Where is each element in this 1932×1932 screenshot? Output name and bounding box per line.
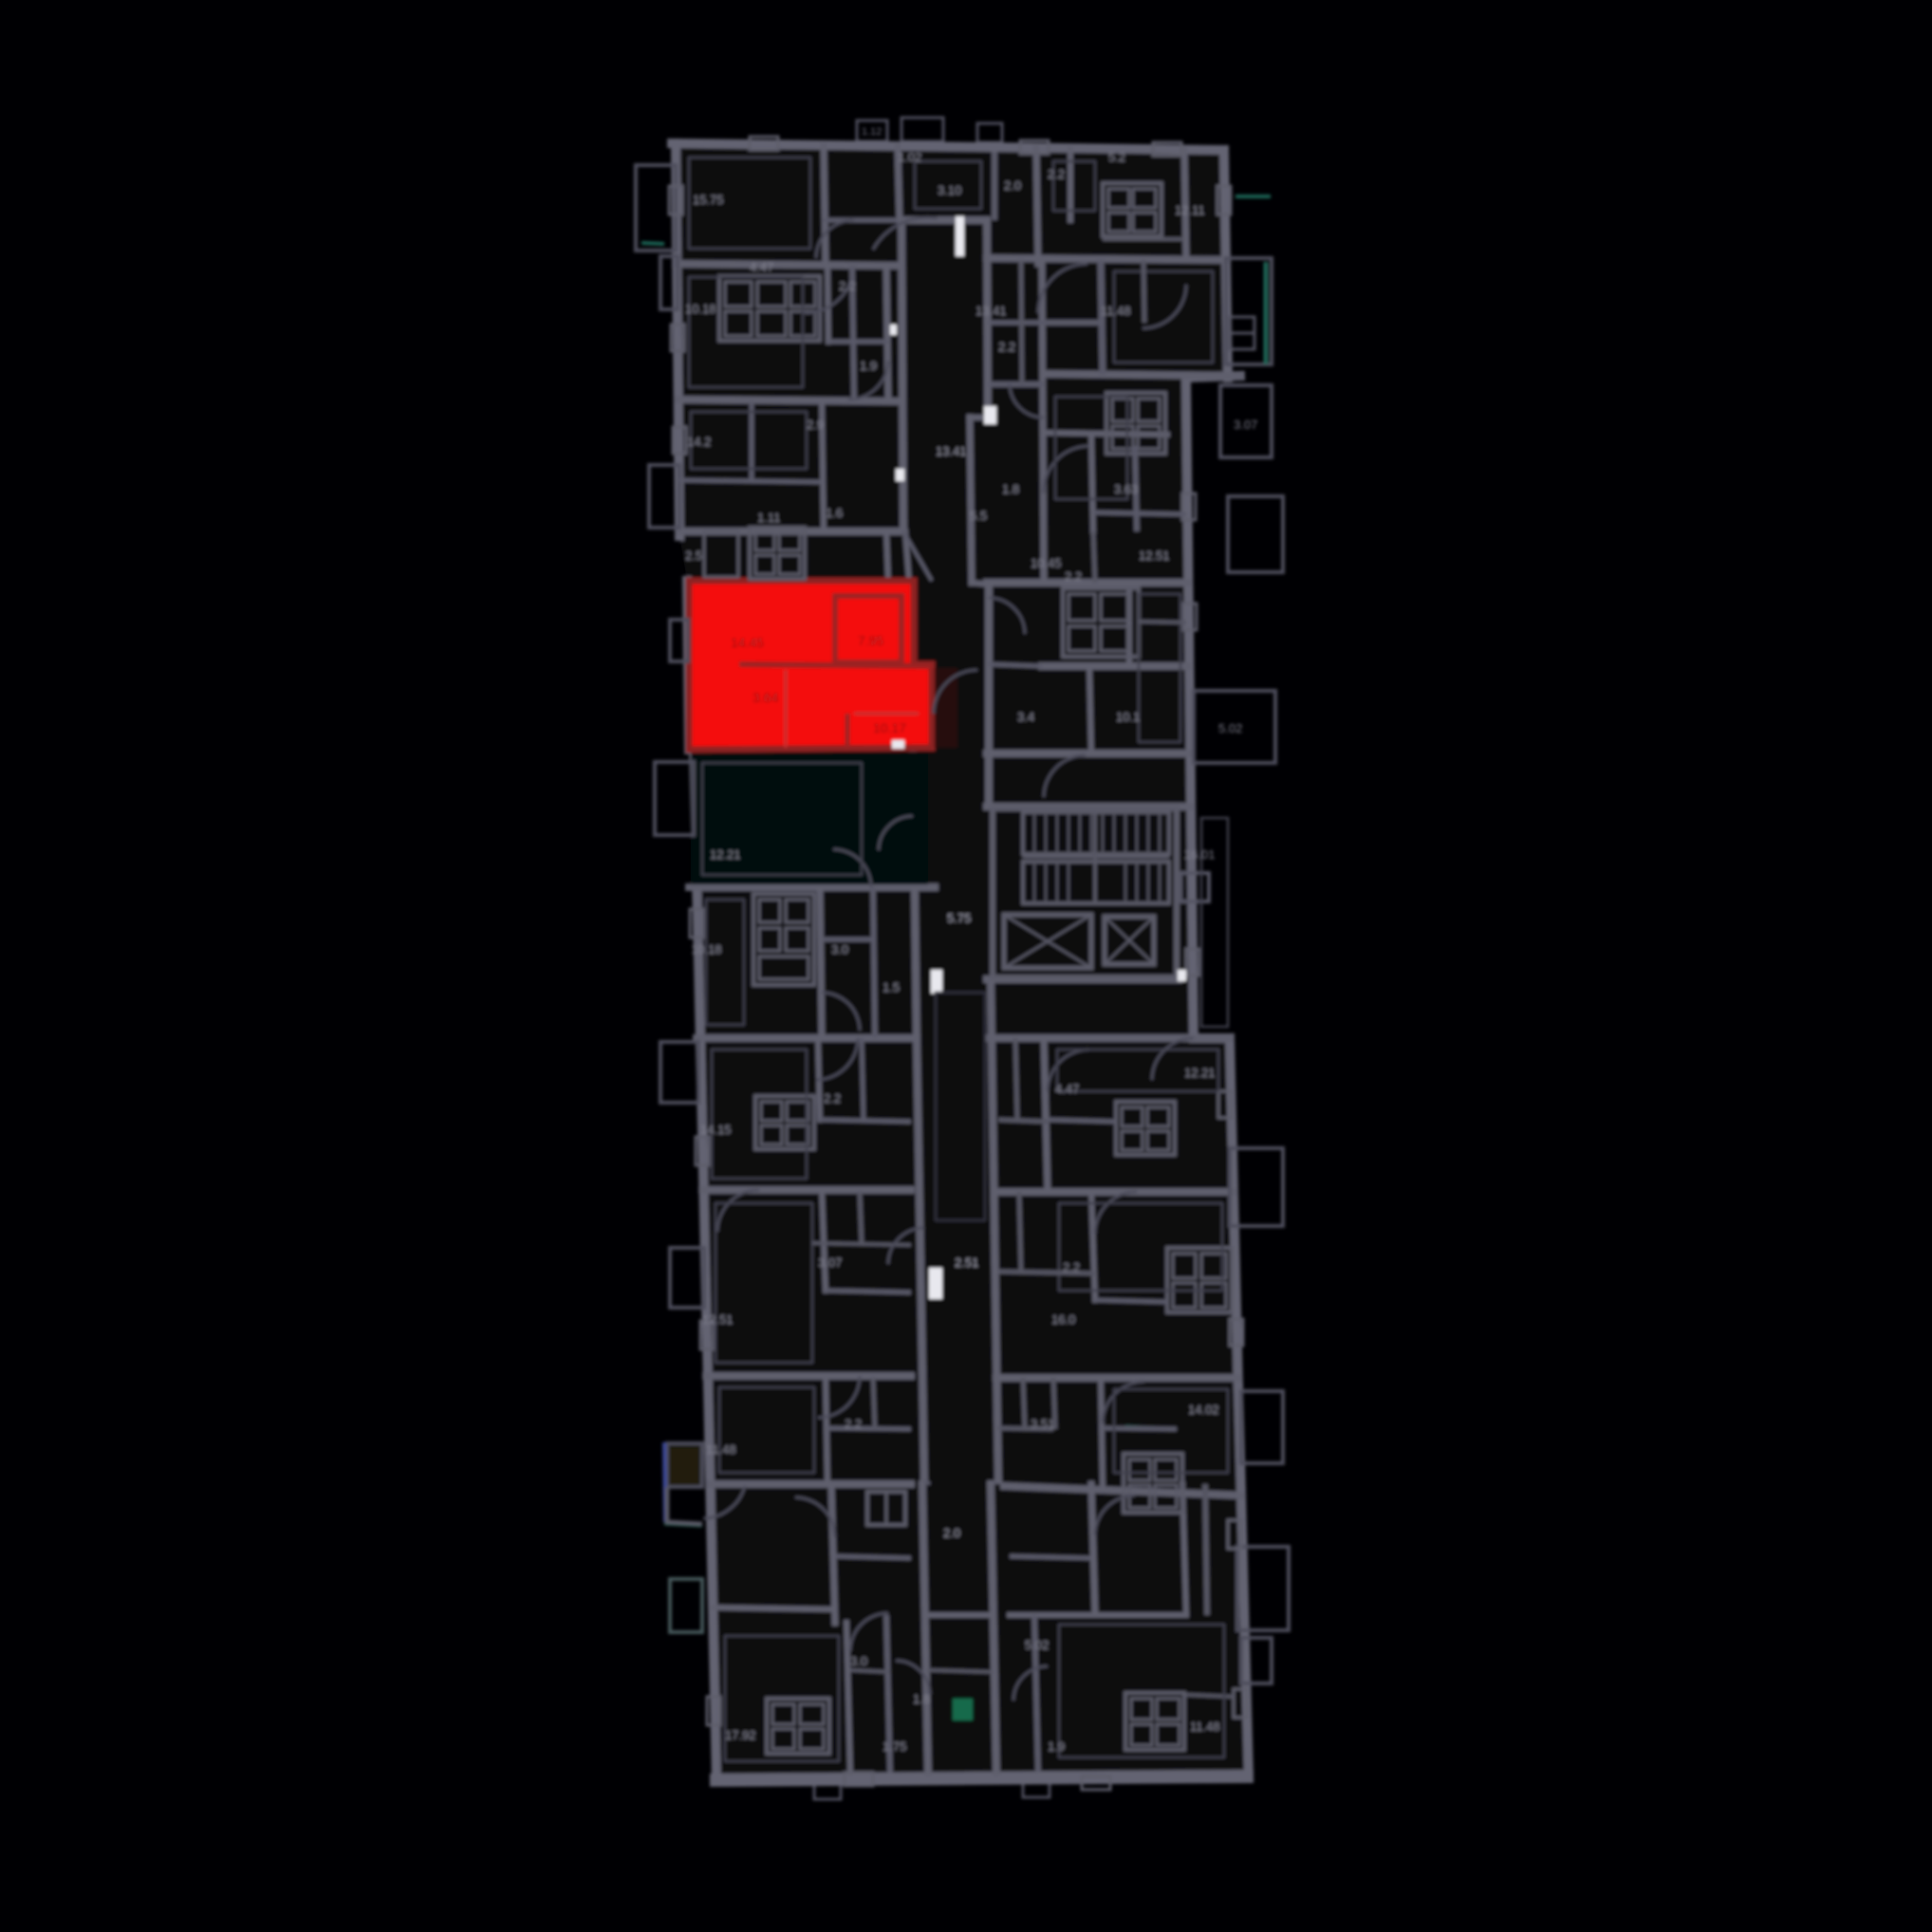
svg-text:2.2: 2.2 xyxy=(824,1091,841,1105)
svg-text:3.0: 3.0 xyxy=(831,942,848,957)
svg-text:2.0: 2.0 xyxy=(1004,178,1021,193)
svg-text:12.51: 12.51 xyxy=(1139,548,1170,563)
svg-text:14.2: 14.2 xyxy=(687,435,711,449)
svg-text:2.9: 2.9 xyxy=(807,418,824,432)
svg-text:3.51: 3.51 xyxy=(1031,1417,1054,1431)
svg-text:7.95: 7.95 xyxy=(858,633,883,648)
svg-text:5.75: 5.75 xyxy=(947,911,971,925)
svg-text:3.0: 3.0 xyxy=(850,1654,867,1668)
svg-text:10.17: 10.17 xyxy=(873,720,906,735)
svg-text:15.75: 15.75 xyxy=(693,193,724,207)
svg-text:10.18: 10.18 xyxy=(691,942,722,957)
svg-text:11.48: 11.48 xyxy=(1101,304,1131,318)
svg-text:11.48: 11.48 xyxy=(1190,1719,1220,1734)
svg-text:2.0: 2.0 xyxy=(943,1526,960,1540)
svg-text:2.2: 2.2 xyxy=(1063,1260,1080,1274)
svg-text:5.02: 5.02 xyxy=(1218,721,1242,735)
svg-text:10.45: 10.45 xyxy=(1031,556,1062,570)
svg-text:5.2: 5.2 xyxy=(1108,150,1125,164)
svg-text:3.64: 3.64 xyxy=(752,690,778,705)
svg-text:14.15: 14.15 xyxy=(700,1123,732,1137)
svg-text:14.02: 14.02 xyxy=(1188,1403,1219,1417)
svg-text:1.12: 1.12 xyxy=(862,126,882,138)
svg-text:1.5: 1.5 xyxy=(882,980,900,994)
svg-text:1.8: 1.8 xyxy=(913,1692,930,1706)
svg-text:5.5: 5.5 xyxy=(970,509,987,523)
svg-text:1.6: 1.6 xyxy=(826,506,843,520)
svg-text:3.4: 3.4 xyxy=(1017,710,1034,724)
svg-text:1.9: 1.9 xyxy=(1048,1739,1065,1754)
svg-text:16.0: 16.0 xyxy=(1051,1312,1075,1327)
svg-text:2.2: 2.2 xyxy=(1048,167,1065,181)
svg-text:12.51: 12.51 xyxy=(702,1312,734,1327)
svg-text:1.02: 1.02 xyxy=(898,150,921,164)
svg-text:12.11: 12.11 xyxy=(1175,203,1205,217)
svg-text:2.2: 2.2 xyxy=(845,1417,862,1431)
svg-text:10.1: 10.1 xyxy=(1116,710,1140,724)
svg-text:13.41: 13.41 xyxy=(975,304,1007,318)
svg-text:13.41: 13.41 xyxy=(936,444,967,458)
svg-text:2.2: 2.2 xyxy=(998,340,1015,354)
svg-text:2.2: 2.2 xyxy=(839,279,856,293)
svg-text:11.48: 11.48 xyxy=(706,1442,736,1457)
svg-text:12.21: 12.21 xyxy=(710,847,741,862)
svg-text:1.9: 1.9 xyxy=(860,359,877,373)
svg-text:17.92: 17.92 xyxy=(725,1728,756,1742)
svg-text:4.47: 4.47 xyxy=(750,260,773,274)
svg-text:2.51: 2.51 xyxy=(955,1255,978,1270)
svg-text:3.07: 3.07 xyxy=(1234,418,1257,432)
svg-text:14.45: 14.45 xyxy=(731,635,764,650)
svg-text:1.75: 1.75 xyxy=(882,1739,906,1754)
svg-text:5.02: 5.02 xyxy=(1025,1638,1049,1652)
svg-text:10.18: 10.18 xyxy=(685,302,716,316)
svg-text:12.21: 12.21 xyxy=(1184,1066,1216,1080)
svg-text:2.2: 2.2 xyxy=(1065,569,1082,584)
svg-text:1.8: 1.8 xyxy=(1002,482,1019,496)
svg-text:3.63: 3.63 xyxy=(1114,482,1138,496)
svg-text:16.01: 16.01 xyxy=(1184,847,1216,862)
svg-text:4.47: 4.47 xyxy=(1055,1082,1079,1096)
svg-text:1.11: 1.11 xyxy=(757,511,780,525)
svg-text:3.10: 3.10 xyxy=(938,183,961,197)
svg-text:3.07: 3.07 xyxy=(818,1255,842,1270)
svg-text:2.5: 2.5 xyxy=(685,548,702,563)
